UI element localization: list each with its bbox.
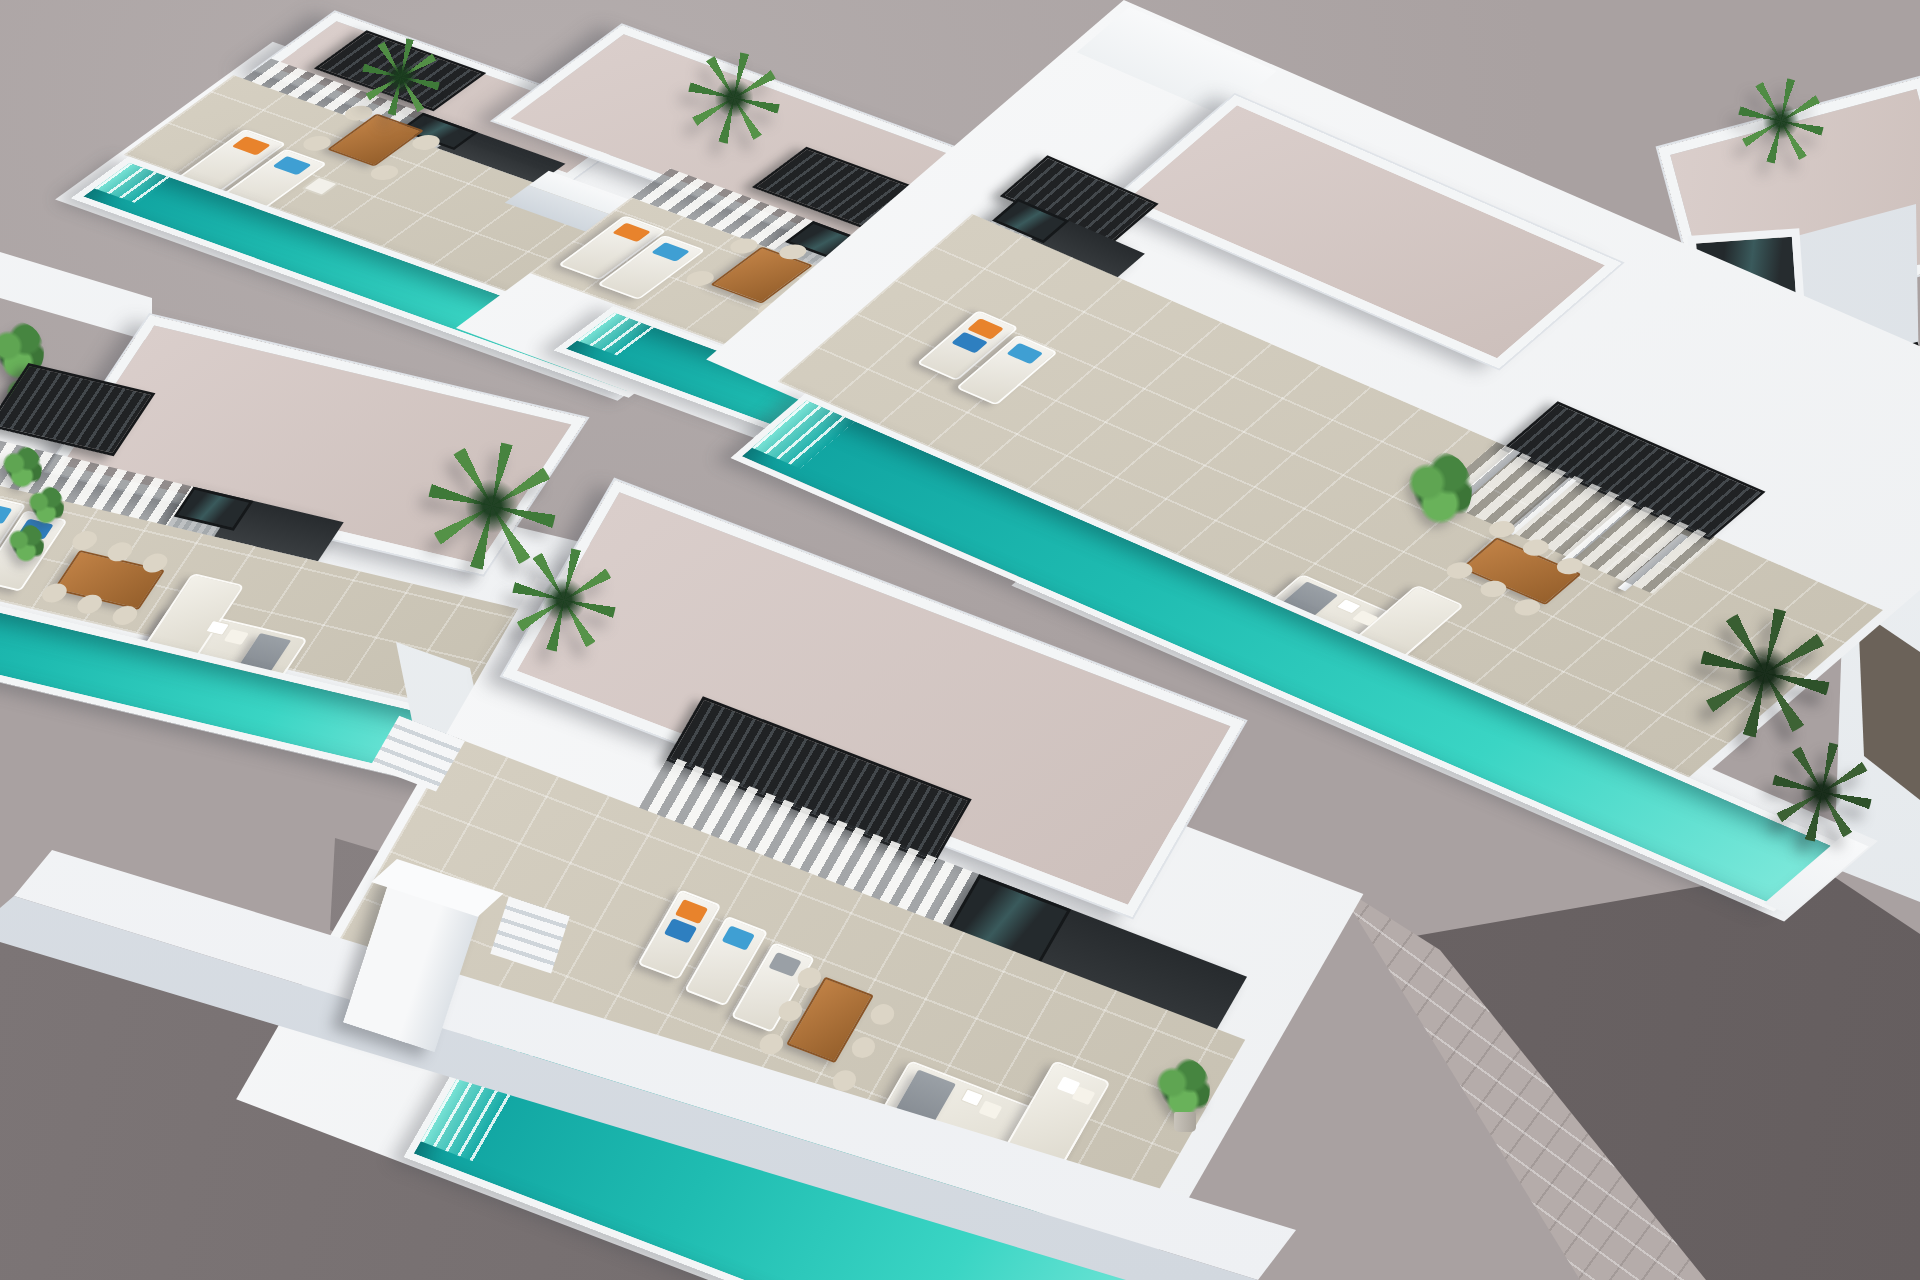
- plant-pot: [1174, 1112, 1196, 1132]
- towel-gray: [768, 952, 801, 977]
- potted-plant: [8, 524, 44, 564]
- plant-villa-5: [1156, 1058, 1210, 1120]
- cushion-blue: [1006, 343, 1043, 365]
- cushion-orange: [967, 318, 1004, 340]
- potted-plant: [28, 486, 64, 526]
- cushion-orange: [675, 899, 708, 924]
- cushion-blue: [722, 926, 755, 951]
- tall-plant-villa-4: [1408, 452, 1472, 528]
- palm-tree-top-right: [1738, 78, 1824, 164]
- dark-palm-villa-4: [1700, 608, 1830, 738]
- cushion-orange: [232, 136, 271, 155]
- palm-tree-villa-5b: [512, 548, 616, 652]
- cushion-blue: [651, 242, 690, 262]
- palm-tree-villa-2: [688, 52, 780, 144]
- architectural-render: [0, 0, 1920, 1280]
- dark-palm-villa-4b: [1772, 742, 1872, 842]
- cushion-blue: [0, 503, 12, 524]
- cushion-orange: [612, 223, 651, 243]
- palm-tree-villa-1: [362, 38, 440, 116]
- palm-tree-villa-5: [428, 442, 556, 570]
- cushion-blue: [273, 156, 312, 175]
- potted-plant: [2, 446, 42, 490]
